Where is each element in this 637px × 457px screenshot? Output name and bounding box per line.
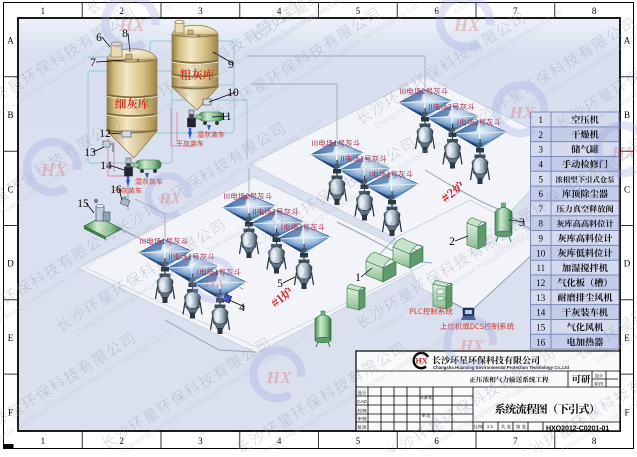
svg-text:HX: HX — [453, 15, 481, 35]
svg-text:15: 15 — [77, 198, 89, 210]
svg-text:15: 15 — [536, 322, 546, 332]
svg-text:HX: HX — [159, 191, 181, 207]
svg-text:5: 5 — [277, 278, 283, 290]
svg-text:HX: HX — [459, 336, 485, 355]
svg-text:7: 7 — [513, 436, 518, 446]
svg-text:3: 3 — [539, 145, 544, 155]
svg-text:14: 14 — [536, 308, 546, 318]
svg-text:D: D — [7, 259, 14, 269]
svg-text:13: 13 — [536, 293, 546, 303]
svg-text:E: E — [8, 333, 14, 343]
svg-text:1:1: 1:1 — [487, 424, 494, 429]
svg-text:10: 10 — [536, 248, 546, 258]
svg-text:1: 1 — [41, 6, 46, 16]
svg-text:6: 6 — [539, 189, 544, 199]
svg-text:11: 11 — [536, 263, 545, 273]
svg-text:3: 3 — [198, 6, 203, 16]
svg-text:HX: HX — [611, 143, 637, 162]
svg-text:HX: HX — [40, 160, 68, 180]
svg-text:HX: HX — [204, 275, 226, 291]
svg-text:5: 5 — [356, 436, 361, 446]
svg-text:14: 14 — [100, 160, 112, 172]
svg-text:4: 4 — [539, 159, 544, 169]
svg-text:HX: HX — [509, 103, 535, 122]
svg-text:A: A — [7, 36, 14, 46]
svg-text:2: 2 — [539, 130, 544, 140]
svg-text:8: 8 — [592, 436, 597, 446]
svg-text:1: 1 — [539, 115, 544, 125]
svg-text:5: 5 — [539, 174, 544, 184]
svg-text:5: 5 — [356, 6, 361, 16]
svg-text:HX: HX — [118, 15, 146, 35]
svg-text:16: 16 — [536, 337, 546, 347]
svg-text:HX: HX — [266, 368, 292, 387]
svg-text:CAD: CAD — [357, 399, 367, 404]
svg-text:2: 2 — [449, 236, 455, 248]
svg-text:4: 4 — [239, 302, 245, 314]
svg-text:D: D — [624, 259, 631, 269]
svg-text:C: C — [624, 184, 630, 194]
svg-text:B: B — [624, 110, 630, 120]
svg-text:8: 8 — [592, 6, 597, 16]
svg-text:12: 12 — [536, 278, 545, 288]
svg-text:1: 1 — [355, 272, 361, 284]
svg-text:3: 3 — [198, 436, 203, 446]
svg-text:1: 1 — [41, 436, 46, 446]
svg-text:10: 10 — [227, 87, 239, 99]
svg-text:9: 9 — [539, 234, 544, 244]
